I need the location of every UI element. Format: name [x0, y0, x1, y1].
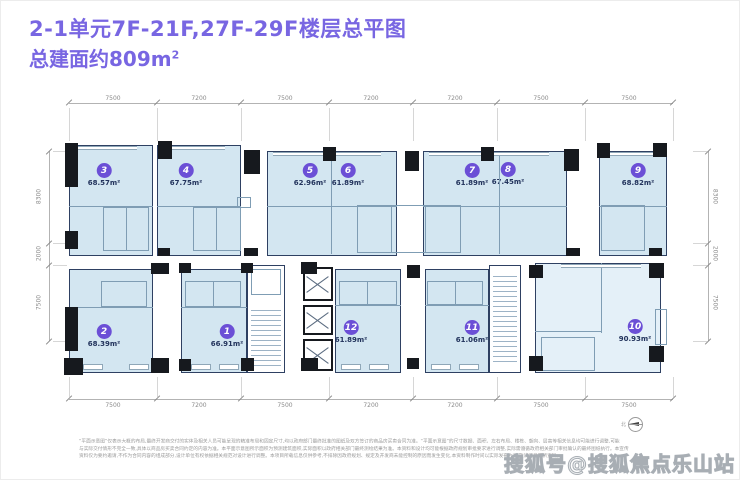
unit-number-badge: 5: [302, 163, 317, 178]
column-block: [407, 265, 420, 278]
interior-wall-line: [535, 331, 601, 332]
watermark: 搜狐号@搜狐焦点乐山站: [504, 448, 735, 477]
dim-extension: [497, 377, 498, 397]
dim-extension: [241, 377, 242, 397]
unit-area: 61.89m²: [456, 179, 489, 187]
unit-number-badge: 10: [627, 319, 642, 334]
window-strip: [165, 146, 225, 150]
stair-treads: [251, 306, 281, 367]
unit-label-5: 562.96m²: [294, 163, 327, 187]
column-block: [405, 151, 419, 171]
dim-extension: [693, 341, 707, 342]
fixture-cluster: [601, 205, 645, 251]
column-block: [241, 358, 254, 371]
dim-label-bottom: 7500: [83, 402, 143, 409]
fixture-cluster: [427, 281, 483, 305]
dim-extension: [693, 265, 707, 266]
page: 2-1单元7F-21F,27F-29F楼层总平图 总建面约809m2 166.9…: [0, 0, 740, 480]
unit-number-badge: 11: [464, 320, 479, 335]
unit-area: 62.96m²: [294, 179, 327, 187]
unit-label-9: 968.82m²: [622, 163, 655, 187]
dim-label-right: 2000: [712, 234, 719, 274]
interior-wall-line: [335, 305, 401, 306]
dim-extension: [157, 377, 158, 397]
unit-label-2: 268.39m²: [88, 324, 121, 348]
column-block: [244, 150, 260, 174]
dim-extension: [413, 108, 414, 141]
column-block: [241, 263, 253, 273]
north-arrow-icon: 北: [621, 417, 643, 432]
dim-extension: [693, 243, 707, 244]
interior-wall-line: [69, 307, 153, 308]
column-block: [323, 147, 336, 161]
dim-label-left: 7500: [36, 283, 43, 323]
fixture-cluster: [357, 205, 461, 253]
fixture-cluster: [237, 197, 251, 208]
dim-label-left: 2000: [36, 234, 43, 274]
dim-label-top: 7500: [599, 95, 659, 102]
unit-label-11: 1161.06m²: [456, 320, 489, 344]
disclaimer-line: “平面示意图”仅表示大概的布局,最终开发商交付的实体及相关人员可能呈现的精准布局…: [79, 438, 704, 445]
unit-label-7: 761.89m²: [456, 163, 489, 187]
window-box: [129, 364, 149, 370]
elevator-shaft-icon: [303, 305, 333, 335]
unit-number-badge: 7: [464, 163, 479, 178]
dim-extension: [585, 377, 586, 397]
column-block: [597, 143, 610, 158]
dim-label-left: 8300: [36, 177, 43, 217]
unit-area: 61.89m²: [332, 179, 365, 187]
unit-number-badge: 8: [500, 162, 515, 177]
window-box: [83, 364, 103, 370]
unit-number-badge: 9: [630, 163, 645, 178]
dim-label-top: 7500: [511, 95, 571, 102]
compass-circle-icon: [628, 417, 643, 432]
stair-treads: [493, 272, 517, 366]
unit-number-badge: 6: [340, 163, 355, 178]
fixture-cluster: [541, 337, 595, 371]
interior-wall-line: [601, 263, 602, 333]
interior-wall-line: [425, 305, 489, 306]
dim-label-right: 8300: [712, 177, 719, 217]
column-block: [566, 248, 580, 256]
window-strip: [77, 146, 137, 150]
column-block: [564, 149, 579, 171]
fixture-cluster: [103, 207, 149, 251]
dim-label-bottom: 7200: [341, 402, 401, 409]
column-block: [301, 358, 318, 371]
window-box: [219, 364, 239, 370]
column-block: [65, 143, 78, 187]
interior-wall-line: [499, 153, 500, 254]
column-block: [407, 358, 419, 369]
unit-label-1: 166.91m²: [211, 324, 244, 348]
compass-needle-icon: [629, 422, 639, 426]
column-block: [301, 262, 317, 274]
dim-line-left: [49, 151, 50, 341]
unit-number-badge: 12: [343, 320, 358, 335]
dim-extension: [673, 377, 674, 397]
dim-label-top: 7500: [255, 95, 315, 102]
dim-extension: [69, 108, 70, 141]
dim-label-top: 7500: [83, 95, 143, 102]
column-block: [65, 231, 78, 249]
dim-extension: [53, 265, 67, 266]
column-block: [649, 248, 662, 256]
column-block: [179, 263, 191, 273]
window-box: [369, 364, 389, 370]
unit-label-10: 1090.93m²: [619, 319, 652, 343]
column-block: [151, 263, 169, 274]
fixture-cluster: [339, 281, 397, 305]
unit-area: 68.57m²: [88, 179, 121, 187]
window-box: [341, 364, 361, 370]
interior-wall-line: [331, 153, 332, 254]
column-block: [481, 147, 494, 161]
unit-label-6: 661.89m²: [332, 163, 365, 187]
dim-label-bottom: 7500: [599, 402, 659, 409]
dim-label-bottom: 7500: [255, 402, 315, 409]
unit-area: 67.75m²: [170, 179, 203, 187]
dim-label-right: 7500: [712, 283, 719, 323]
dim-label-top: 7200: [169, 95, 229, 102]
column-block: [529, 356, 543, 371]
fixture-cluster: [101, 281, 147, 307]
unit-area: 66.91m²: [211, 340, 244, 348]
dim-extension: [673, 108, 674, 141]
dim-label-top: 7200: [341, 95, 401, 102]
fixture-cluster: [185, 281, 241, 307]
unit-area: 61.89m²: [335, 336, 368, 344]
column-block: [158, 141, 172, 159]
column-block: [649, 346, 664, 362]
column-block: [65, 307, 78, 351]
column-block: [529, 265, 543, 278]
unit-area: 61.06m²: [456, 336, 489, 344]
column-block: [179, 359, 191, 371]
dim-extension: [157, 108, 158, 141]
unit-number-badge: 4: [178, 163, 193, 178]
fixture-cluster: [251, 269, 281, 295]
unit-area: 90.93m²: [619, 335, 652, 343]
unit-label-8: 867.45m²: [492, 162, 525, 186]
unit-number-badge: 1: [219, 324, 234, 339]
dim-extension: [413, 377, 414, 397]
dim-extension: [497, 108, 498, 141]
fixture-cluster: [655, 309, 667, 345]
unit-number-badge: 2: [96, 324, 111, 339]
dim-tick: [46, 338, 52, 344]
window-strip: [561, 264, 641, 268]
window-box: [191, 364, 211, 370]
dim-label-top: 7200: [425, 95, 485, 102]
subtitle-text: 总建面约809m: [29, 47, 172, 71]
window-strip: [605, 152, 659, 156]
column-block: [151, 358, 169, 373]
window-box: [459, 364, 479, 370]
north-label: 北: [621, 421, 626, 428]
unit-area: 68.39m²: [88, 340, 121, 348]
column-block: [649, 263, 664, 278]
column-block: [244, 248, 258, 256]
page-title: 2-1单元7F-21F,27F-29F楼层总平图: [29, 13, 406, 43]
column-block: [64, 358, 83, 375]
unit-label-3: 368.57m²: [88, 163, 121, 187]
dim-line-right: [708, 151, 709, 341]
dim-extension: [585, 108, 586, 141]
unit-area: 68.82m²: [622, 179, 655, 187]
dim-extension: [329, 377, 330, 397]
dim-extension: [69, 377, 70, 397]
unit-label-4: 467.75m²: [170, 163, 203, 187]
dim-extension: [241, 108, 242, 141]
dim-label-bottom: 7200: [169, 402, 229, 409]
window-box: [431, 364, 451, 370]
page-subtitle: 总建面约809m2: [29, 43, 179, 72]
subtitle-superscript: 2: [172, 48, 180, 61]
interior-wall-line: [181, 307, 247, 308]
dim-extension: [329, 108, 330, 141]
unit-label-12: 1261.89m²: [335, 320, 368, 344]
column-block: [653, 143, 667, 157]
unit-area: 67.45m²: [492, 178, 525, 186]
dim-tick: [670, 99, 676, 105]
dim-label-bottom: 7500: [511, 402, 571, 409]
dim-extension: [693, 151, 707, 152]
unit-number-badge: 3: [96, 163, 111, 178]
staircase-secondary: [489, 265, 521, 373]
column-block: [158, 248, 170, 256]
dim-label-bottom: 7200: [425, 402, 485, 409]
fixture-cluster: [193, 207, 241, 251]
